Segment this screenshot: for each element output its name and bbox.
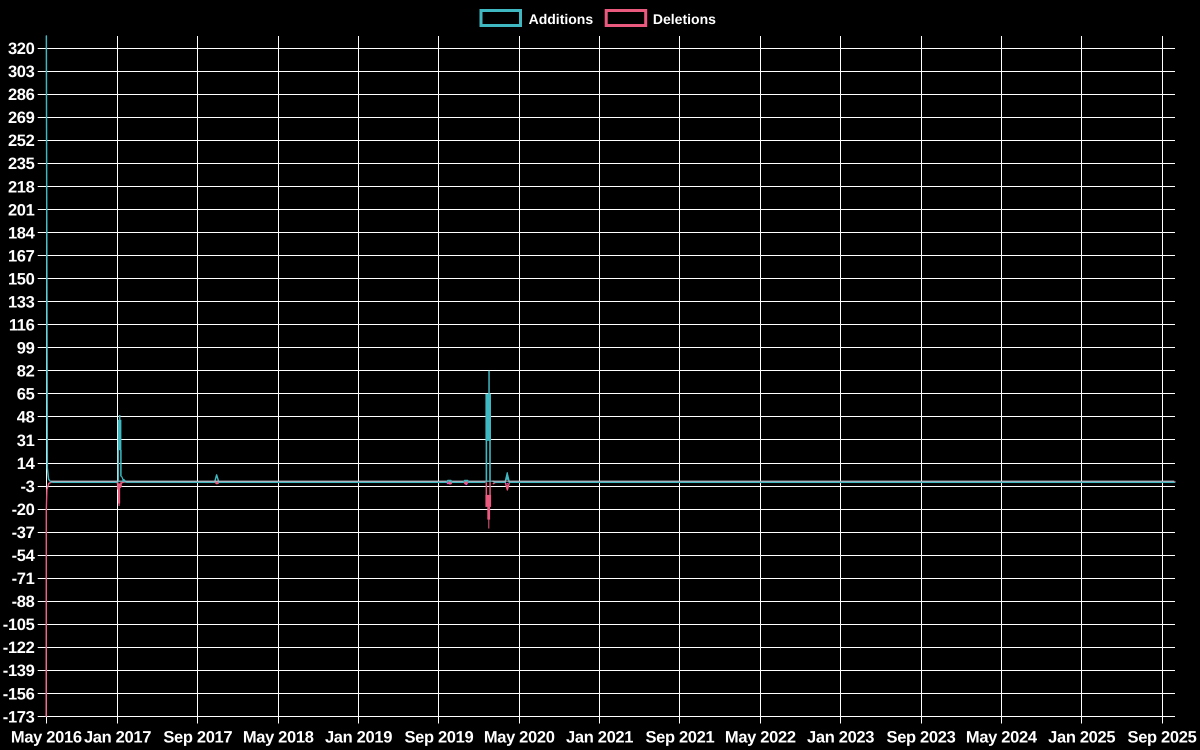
svg-text:286: 286 [8, 86, 35, 104]
svg-text:May 2024: May 2024 [966, 729, 1038, 747]
svg-text:201: 201 [8, 201, 35, 219]
svg-text:303: 303 [8, 63, 35, 81]
svg-text:235: 235 [8, 155, 35, 173]
svg-text:-122: -122 [3, 639, 35, 657]
svg-text:May 2018: May 2018 [243, 729, 314, 747]
svg-text:-105: -105 [3, 616, 35, 634]
svg-text:65: 65 [17, 386, 35, 404]
svg-text:116: 116 [9, 317, 35, 335]
svg-text:-139: -139 [3, 662, 35, 680]
svg-text:31: 31 [17, 432, 35, 450]
svg-text:48: 48 [17, 409, 35, 427]
svg-text:May 2022: May 2022 [725, 729, 796, 747]
svg-text:Deletions: Deletions [653, 11, 716, 27]
svg-text:Jan 2021: Jan 2021 [566, 729, 633, 747]
svg-text:Jan 2017: Jan 2017 [84, 729, 151, 747]
svg-text:184: 184 [8, 224, 36, 242]
svg-text:May 2020: May 2020 [484, 729, 555, 747]
svg-text:82: 82 [17, 363, 35, 381]
svg-text:-20: -20 [12, 501, 35, 519]
svg-text:-88: -88 [12, 593, 35, 611]
svg-text:320: 320 [8, 40, 35, 58]
svg-text:Jan 2025: Jan 2025 [1048, 729, 1115, 747]
svg-text:150: 150 [8, 270, 35, 288]
svg-text:-37: -37 [12, 524, 35, 542]
svg-text:Additions: Additions [529, 11, 594, 27]
svg-text:-156: -156 [3, 685, 35, 703]
svg-text:Sep 2017: Sep 2017 [163, 729, 232, 747]
svg-text:-173: -173 [3, 708, 35, 726]
svg-text:14: 14 [17, 455, 36, 473]
svg-text:Jan 2019: Jan 2019 [325, 729, 392, 747]
svg-text:133: 133 [8, 294, 35, 312]
svg-text:167: 167 [8, 247, 35, 265]
svg-text:-3: -3 [20, 478, 34, 496]
svg-text:Sep 2023: Sep 2023 [887, 729, 956, 747]
svg-text:Jan 2023: Jan 2023 [807, 729, 874, 747]
svg-text:Sep 2019: Sep 2019 [404, 729, 473, 747]
svg-text:99: 99 [17, 340, 35, 358]
svg-text:252: 252 [8, 132, 35, 150]
svg-text:Sep 2021: Sep 2021 [645, 729, 714, 747]
svg-text:218: 218 [8, 178, 35, 196]
svg-text:May 2016: May 2016 [11, 729, 82, 747]
svg-text:Sep 2025: Sep 2025 [1128, 729, 1197, 747]
svg-text:-71: -71 [12, 570, 35, 588]
svg-text:269: 269 [8, 109, 35, 127]
svg-text:-54: -54 [12, 547, 36, 565]
